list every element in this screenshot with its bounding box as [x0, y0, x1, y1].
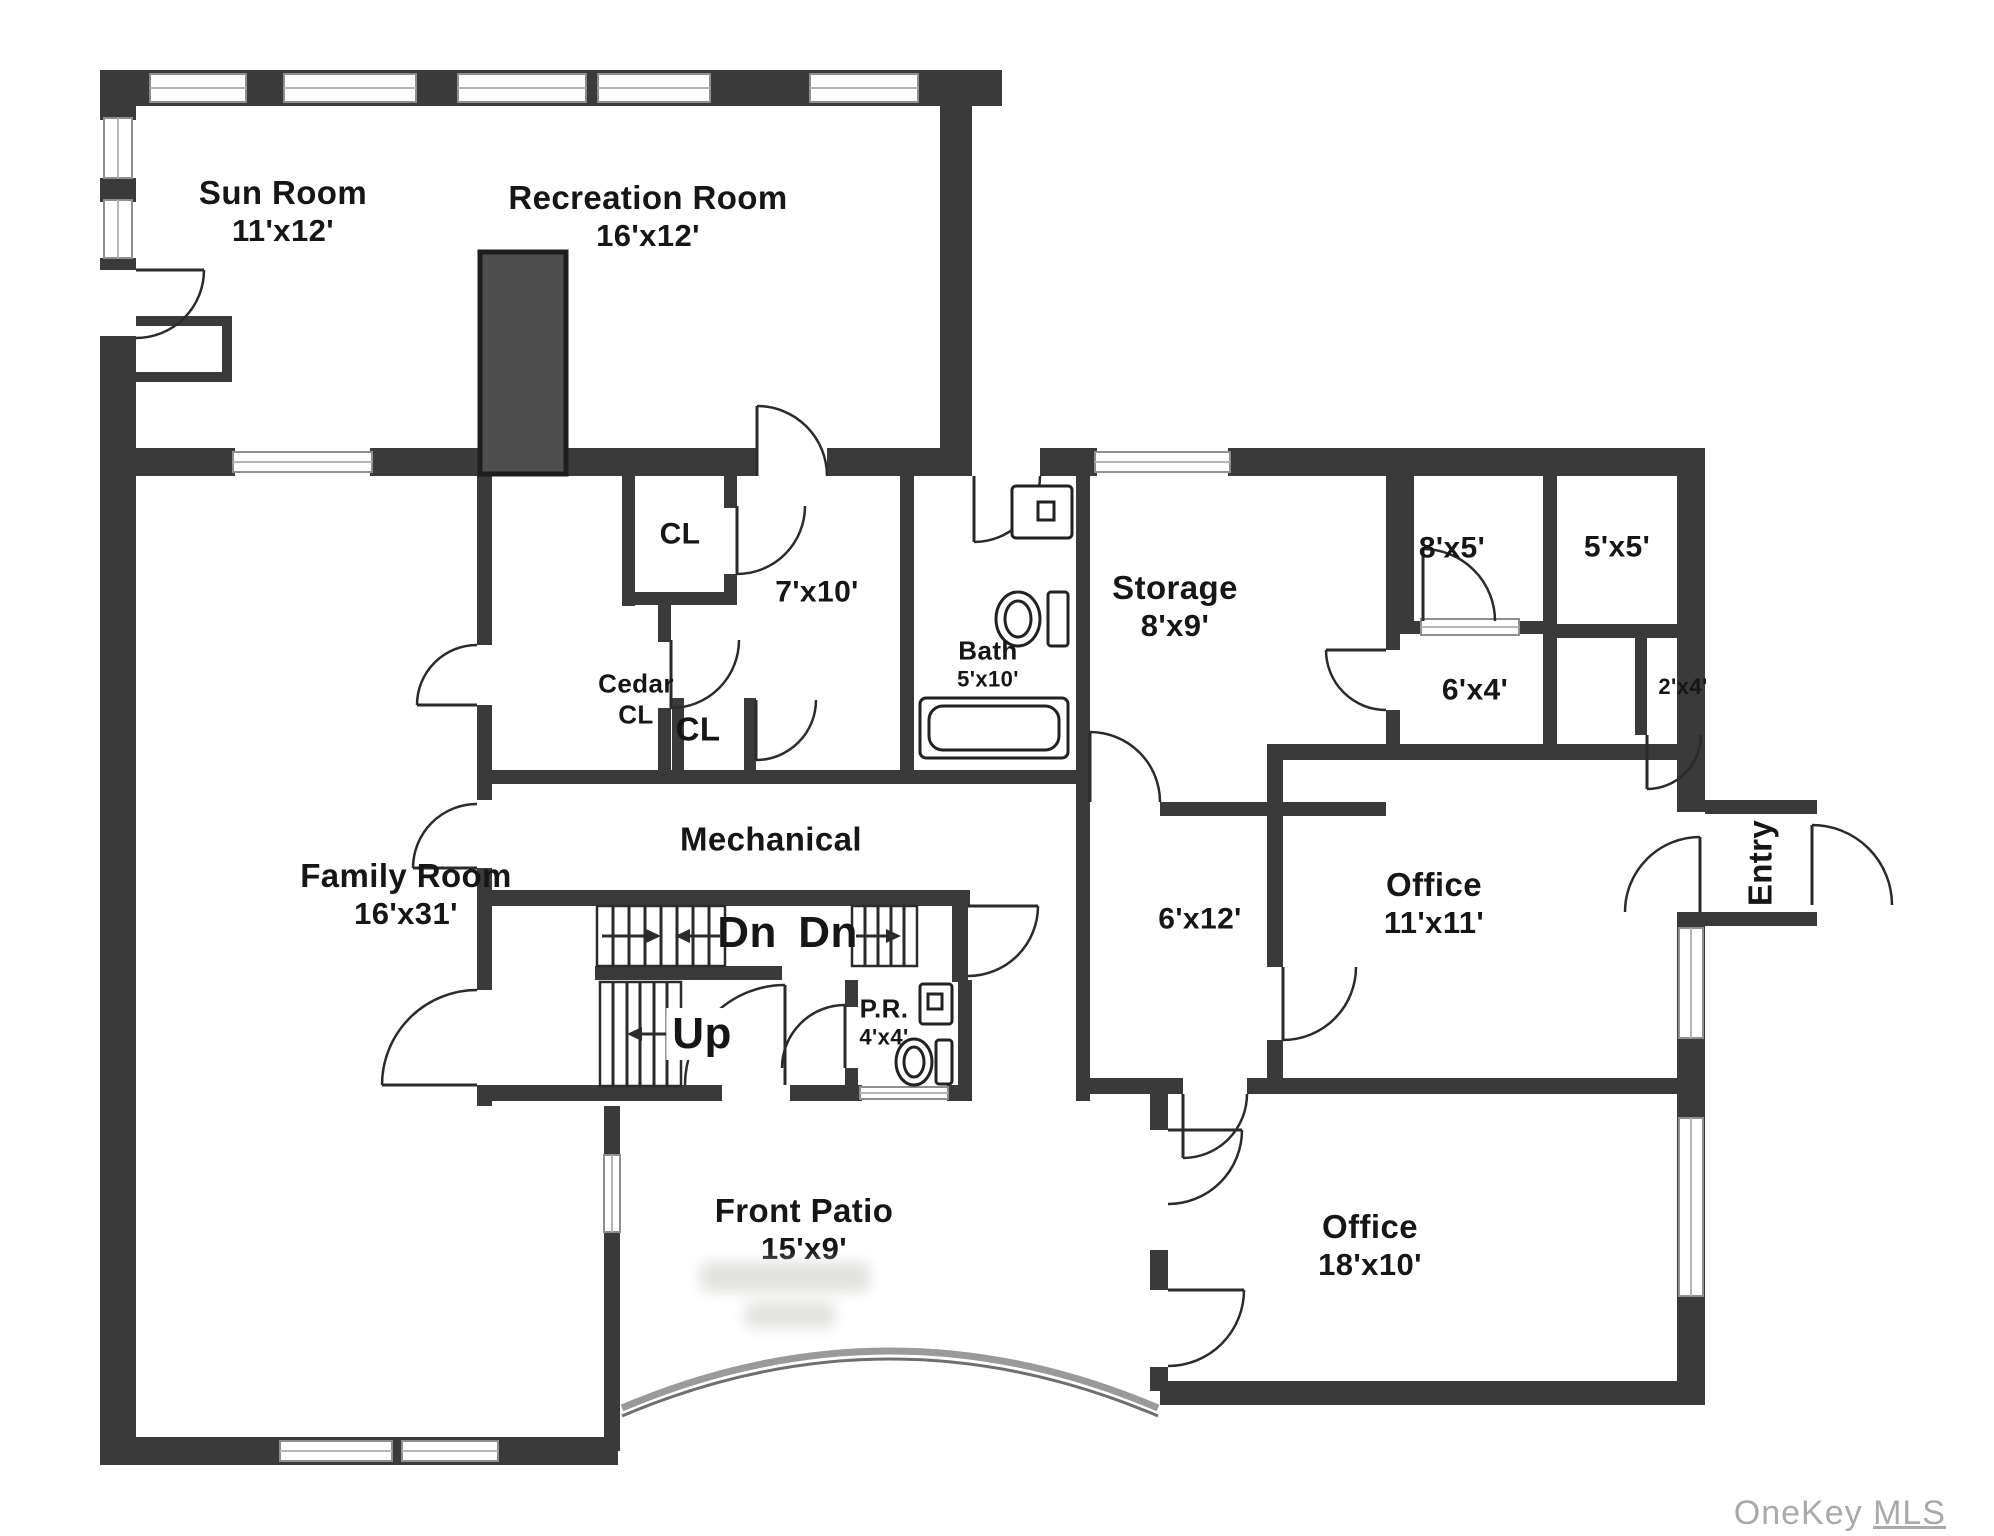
room-dims: 16'x12' — [508, 218, 787, 255]
door-sun-room — [136, 270, 204, 338]
room-dims: 6'x12' — [1158, 901, 1241, 936]
room-dims: 4'x4' — [859, 1024, 908, 1050]
scan-ghost-text-line2 — [745, 1302, 835, 1328]
room-label-cedar-cl: Cedar CL — [598, 668, 674, 729]
window — [598, 74, 710, 102]
stair-label-dn-1: Dn — [717, 907, 776, 959]
window — [280, 1441, 392, 1461]
room-dims: 8'x5' — [1419, 530, 1485, 565]
room-name: Entry — [1742, 820, 1781, 906]
window — [860, 1087, 948, 1099]
room-name: Storage — [1112, 569, 1238, 608]
window — [1095, 452, 1230, 472]
room-name: Bath — [957, 636, 1019, 667]
room-name: Sun Room — [199, 174, 367, 213]
room-name: Recreation Room — [508, 179, 787, 218]
watermark-suffix: MLS — [1873, 1494, 1946, 1532]
watermark-brand: OneKey — [1734, 1494, 1863, 1532]
room-label-front-patio: Front Patio 15'x9' — [715, 1192, 894, 1268]
room-dims: 11'x12' — [199, 213, 367, 250]
room-dims: 7'x10' — [775, 574, 858, 609]
room-dims: 18'x10' — [1318, 1247, 1422, 1284]
room-label-cl-small: CL — [676, 711, 721, 750]
room-name-line2: CL — [598, 699, 674, 730]
room-label-8x5: 8'x5' — [1419, 530, 1485, 565]
room-label-powder-room: P.R. 4'x4' — [859, 994, 908, 1051]
window — [233, 452, 372, 472]
room-name: Office — [1384, 866, 1484, 905]
room-label-storage: Storage 8'x9' — [1112, 569, 1238, 645]
window — [1679, 928, 1703, 1038]
room-name-line1: Cedar — [598, 668, 674, 699]
room-name: Office — [1318, 1208, 1422, 1247]
room-label-family-room: Family Room 16'x31' — [300, 857, 512, 933]
stair-label-dn-2: Dn — [798, 907, 857, 959]
door-office18-upper — [1168, 1130, 1242, 1204]
window — [104, 200, 132, 258]
room-dims: 5'x5' — [1584, 529, 1650, 564]
pr-sink-icon — [920, 984, 952, 1024]
door-hall-landing — [968, 906, 1038, 976]
window — [458, 74, 586, 102]
room-dims: 11'x11' — [1384, 905, 1484, 942]
doors — [136, 270, 1892, 1366]
room-label-office-18x10: Office 18'x10' — [1318, 1208, 1422, 1284]
room-label-2x4: 2'x4' — [1658, 674, 1707, 700]
door-hall-to-office18 — [1183, 1094, 1247, 1158]
window — [284, 74, 416, 102]
door-family-3 — [382, 990, 477, 1085]
room-dims: 2'x4' — [1658, 674, 1707, 700]
room-label-6x12: 6'x12' — [1158, 901, 1241, 936]
door-hall-to-office11 — [1283, 967, 1356, 1040]
bath-sink-icon — [1012, 486, 1072, 538]
room-dims: 6'x4' — [1442, 672, 1508, 707]
window — [150, 74, 246, 102]
stair-arrow-down-mid — [675, 929, 720, 943]
room-name: Front Patio — [715, 1192, 894, 1231]
window — [402, 1441, 498, 1461]
stair-label-up: Up — [666, 1008, 737, 1060]
room-label-mechanical: Mechanical — [680, 821, 862, 860]
room-name: Family Room — [300, 857, 512, 896]
room-name: Mechanical — [680, 821, 862, 860]
door-cl-closet — [737, 506, 805, 574]
door-storage — [1090, 732, 1160, 802]
bathtub-icon — [920, 698, 1068, 758]
door-entry-outer — [1812, 825, 1892, 905]
room-dims: 8'x9' — [1112, 608, 1238, 645]
door-small-cl — [756, 700, 816, 760]
scan-ghost-text-line1 — [700, 1262, 870, 1292]
room-label-recreation: Recreation Room 16'x12' — [508, 179, 787, 255]
room-label-office-11x11: Office 11'x11' — [1384, 866, 1484, 942]
window — [1421, 619, 1519, 635]
room-dims: 5'x10' — [957, 666, 1019, 692]
exterior-walls — [100, 70, 1817, 1465]
floor-plan: Sun Room 11'x12' Recreation Room 16'x12'… — [0, 0, 1994, 1536]
room-label-7x10: 7'x10' — [775, 574, 858, 609]
window — [604, 1155, 620, 1232]
room-label-6x4: 6'x4' — [1442, 672, 1508, 707]
door-family-1 — [417, 645, 477, 705]
stair-arrow-down-left — [602, 929, 661, 943]
window — [810, 74, 918, 102]
chimney — [480, 252, 566, 474]
room-label-entry: Entry — [1742, 820, 1781, 906]
room-label-sun-room: Sun Room 11'x12' — [199, 174, 367, 250]
window — [1679, 1118, 1703, 1296]
room-name: CL — [660, 516, 701, 551]
watermark-onekey-mls: OneKey MLS — [1734, 1494, 1946, 1533]
interior-walls — [136, 316, 1705, 1391]
room-label-cl-top: CL — [660, 516, 701, 551]
door-cedar-closet — [671, 640, 739, 708]
room-label-bath: Bath 5'x10' — [957, 636, 1019, 693]
room-name: CL — [676, 711, 721, 750]
door-entry-inner — [1625, 837, 1700, 912]
door-office18-lower — [1168, 1290, 1244, 1366]
room-dims: 16'x31' — [300, 896, 512, 933]
room-name: P.R. — [859, 994, 908, 1025]
door-storage-side — [1326, 650, 1386, 710]
fixtures — [896, 486, 1072, 1085]
patio-arc — [622, 1351, 1158, 1416]
door-7x10-to-rec — [757, 406, 827, 476]
window — [104, 118, 132, 178]
room-label-5x5: 5'x5' — [1584, 529, 1650, 564]
door-powder-room — [782, 1005, 845, 1068]
